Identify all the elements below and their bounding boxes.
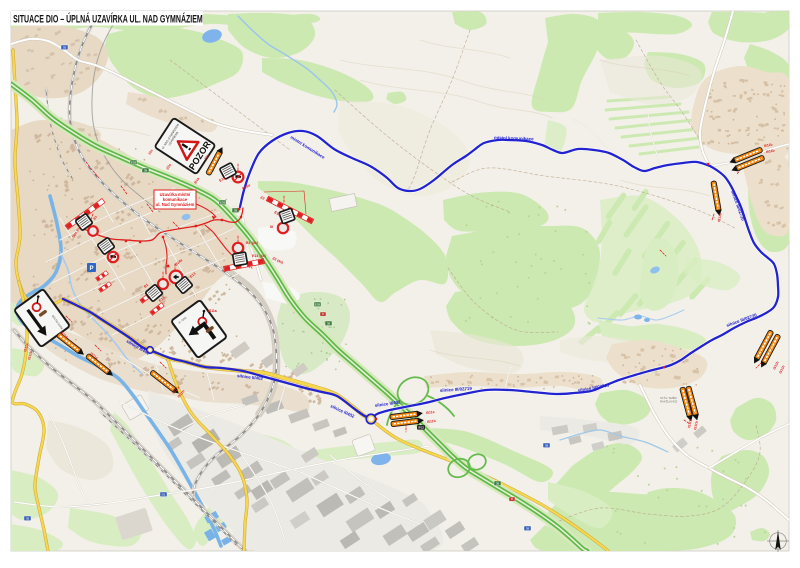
svg-text:D1: D1 (162, 492, 166, 496)
svg-text:E59: E59 (220, 200, 226, 204)
svg-text:35: 35 (26, 516, 30, 520)
svg-text:P: P (89, 266, 93, 272)
svg-text:E59: E59 (315, 302, 321, 306)
svg-text:38: 38 (144, 168, 148, 172)
svg-text:38: 38 (327, 321, 331, 325)
svg-text:38: 38 (545, 443, 549, 447)
svg-text:ul. Nad Gymnáziem: ul. Nad Gymnáziem (156, 202, 195, 207)
svg-text:38: 38 (526, 526, 530, 530)
svg-text:RAKŠLAVICE: RAKŠLAVICE (660, 399, 677, 404)
svg-text:E13 (4x): E13 (4x) (252, 254, 267, 258)
svg-text:IS11a: IS11a (208, 309, 217, 313)
svg-text:E59: E59 (131, 160, 137, 164)
svg-text:38: 38 (234, 208, 238, 212)
svg-text:38: 38 (496, 481, 500, 485)
svg-text:B1 (4x): B1 (4x) (246, 241, 259, 245)
svg-text:35: 35 (63, 45, 67, 49)
svg-text:SITUACE DIO – ÚPLNÁ UZAVÍRKA U: SITUACE DIO – ÚPLNÁ UZAVÍRKA UL. NAD GYM… (13, 12, 203, 25)
svg-text:I8: I8 (270, 225, 273, 229)
svg-text:IP22: IP22 (418, 426, 425, 430)
